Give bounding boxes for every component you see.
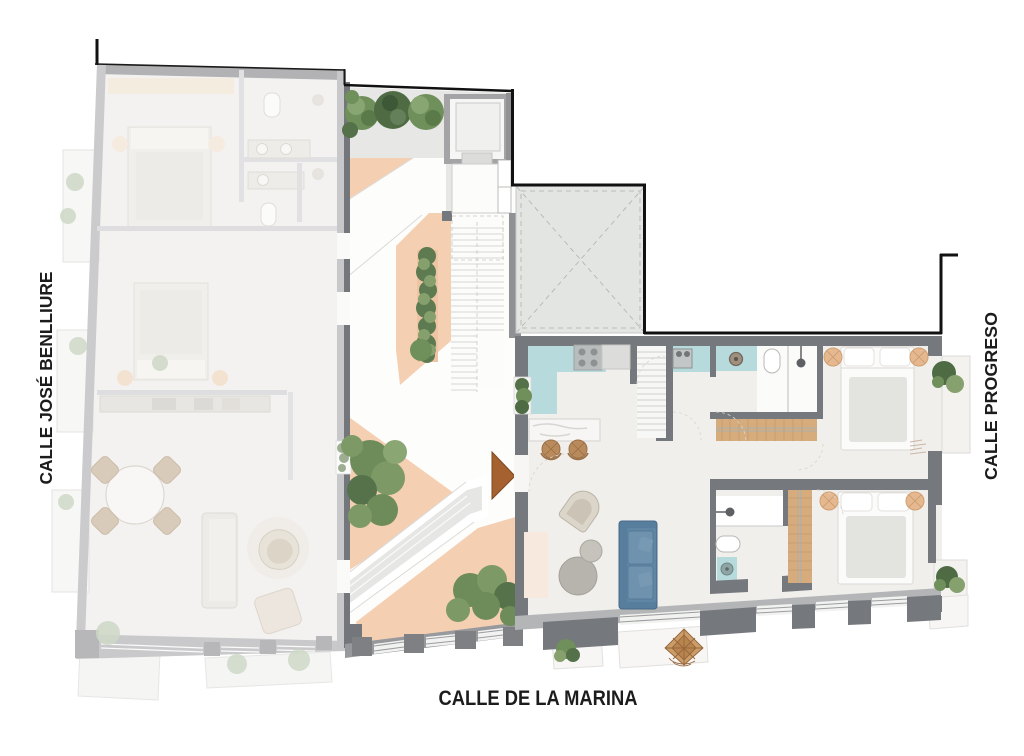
svg-text:CALLE PROGRESO: CALLE PROGRESO — [981, 312, 1001, 480]
svg-text:CALLE DE LA MARINA: CALLE DE LA MARINA — [439, 686, 638, 710]
svg-text:CALLE JOSÉ BENLLIURE: CALLE JOSÉ BENLLIURE — [35, 272, 56, 485]
